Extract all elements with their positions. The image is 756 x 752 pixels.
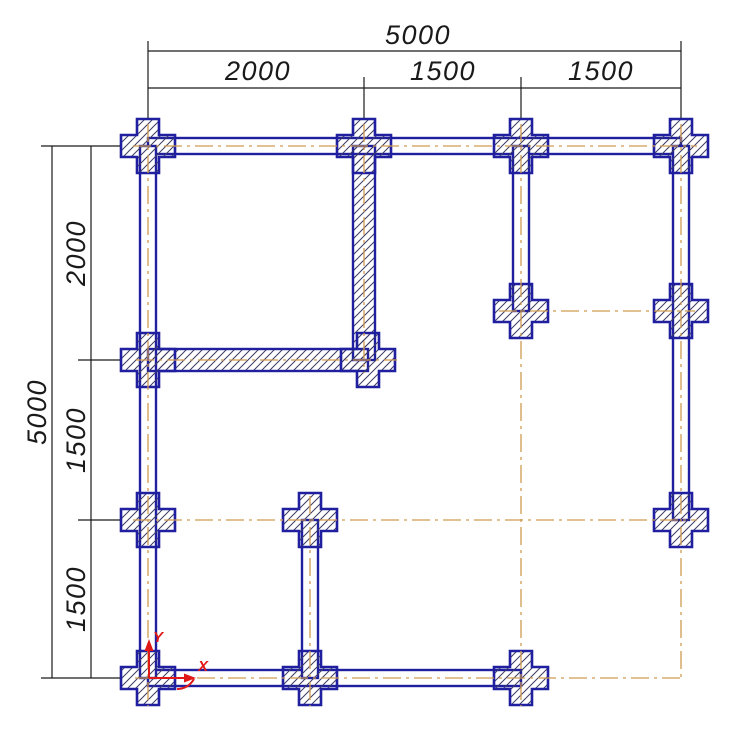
ucs-x-label: X xyxy=(197,658,209,675)
drawing-canvas: 5000 2000 1500 1500 5000 2000 1500 1500 … xyxy=(0,0,756,752)
dimension-label-left-overall: 5000 xyxy=(22,379,52,445)
dimensions-top: 5000 2000 1500 1500 xyxy=(148,20,681,118)
floor-plan-svg: 5000 2000 1500 1500 5000 2000 1500 1500 … xyxy=(0,0,756,752)
ucs-y-label: Y xyxy=(153,629,165,646)
dimension-label-top-overall: 5000 xyxy=(385,20,451,50)
dimension-label-left-seg1: 2000 xyxy=(61,220,91,287)
dimension-label-top-seg2: 1500 xyxy=(410,56,476,86)
piers xyxy=(121,119,708,705)
walls xyxy=(140,138,689,686)
axis-centerlines xyxy=(133,124,697,706)
dimension-label-left-seg3: 1500 xyxy=(61,566,91,632)
hatched-walls xyxy=(148,146,375,371)
dimensions-left: 5000 2000 1500 1500 xyxy=(22,146,120,678)
dimension-label-top-seg3: 1500 xyxy=(568,56,634,86)
dimension-label-left-seg2: 1500 xyxy=(61,407,91,473)
dimension-label-top-seg1: 2000 xyxy=(224,56,291,86)
